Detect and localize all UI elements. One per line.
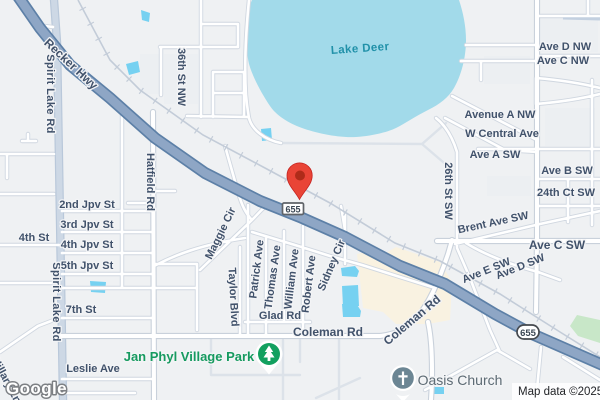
svg-text:Ave C NW: Ave C NW — [537, 55, 590, 67]
svg-text:Map data ©2025: Map data ©2025 — [518, 386, 600, 398]
svg-text:Coleman Rd: Coleman Rd — [293, 325, 363, 339]
svg-text:Avenue A NW: Avenue A NW — [465, 109, 537, 121]
svg-text:Google: Google — [6, 379, 67, 398]
svg-text:Leslie Ave: Leslie Ave — [66, 363, 120, 375]
svg-text:Jan Phyl Village Park: Jan Phyl Village Park — [124, 349, 255, 364]
svg-text:Ave B SW: Ave B SW — [541, 165, 593, 177]
svg-text:36th St NW: 36th St NW — [175, 48, 187, 107]
svg-text:655: 655 — [285, 205, 300, 215]
svg-text:Oasis Church: Oasis Church — [418, 372, 503, 388]
svg-text:Ave A SW: Ave A SW — [470, 149, 521, 161]
svg-text:Hatfield Rd: Hatfield Rd — [144, 153, 156, 211]
svg-text:3rd Jpv St: 3rd Jpv St — [60, 219, 114, 231]
svg-text:655: 655 — [520, 328, 537, 339]
svg-text:26th St SW: 26th St SW — [442, 162, 454, 220]
svg-text:5th Jpv St: 5th Jpv St — [61, 260, 114, 272]
svg-text:Ave D NW: Ave D NW — [539, 41, 592, 53]
svg-text:2nd Jpv St: 2nd Jpv St — [59, 199, 115, 211]
svg-text:Spirit Lake Rd: Spirit Lake Rd — [44, 54, 56, 134]
svg-text:24th Ct SW: 24th Ct SW — [537, 187, 596, 199]
svg-text:Ave C SW: Ave C SW — [529, 238, 586, 252]
svg-text:4th Jpv St: 4th Jpv St — [61, 239, 114, 251]
svg-text:4th St: 4th St — [19, 232, 50, 244]
svg-text:Spirit Lake Rd: Spirit Lake Rd — [50, 262, 62, 342]
svg-text:W Central Ave: W Central Ave — [465, 128, 539, 140]
svg-text:7th St: 7th St — [66, 304, 97, 316]
svg-text:Glad Rd: Glad Rd — [259, 310, 301, 322]
